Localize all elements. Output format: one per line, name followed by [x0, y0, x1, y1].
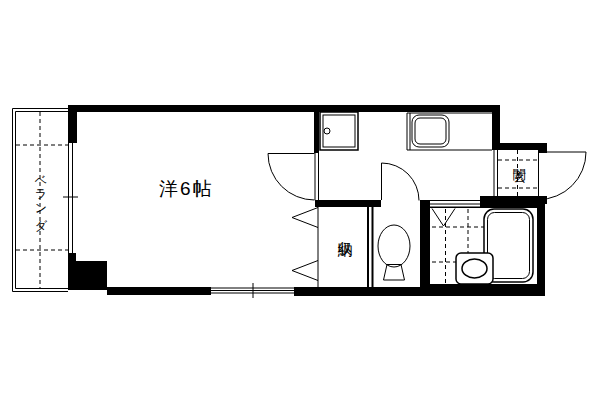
- wall-entrance-bottom: [480, 196, 547, 204]
- toilet-room: [378, 163, 419, 280]
- wall-storage-top: [315, 200, 381, 207]
- main-room-label: 洋6帖: [159, 176, 214, 202]
- door-swing-arc-icon: [539, 152, 587, 200]
- washing-machine-pan-icon: [320, 112, 358, 150]
- storage-label: 収納: [335, 229, 354, 231]
- wall-toilet-bath: [420, 200, 430, 287]
- folding-door-icon: [292, 261, 318, 281]
- folding-door-icon: [292, 208, 318, 228]
- door-swing-arc-icon: [382, 163, 420, 201]
- toilet-icon: [378, 225, 410, 267]
- wall-left-upper: [68, 105, 77, 143]
- veranda-label: ベランダ: [32, 166, 49, 224]
- faucet-drain-icon: [324, 128, 330, 134]
- washing-machine: [320, 112, 358, 150]
- wall-bath-bottom: [420, 284, 545, 296]
- bathroom-door: [430, 201, 480, 226]
- kitchen-sink-icon: [412, 115, 449, 147]
- wall-right: [537, 200, 545, 296]
- wall-bottom-left: [107, 287, 211, 295]
- room-door: [268, 153, 319, 200]
- storage-toilet-wall: [368, 207, 373, 287]
- wall-left-lower-block: [76, 261, 107, 290]
- wall-mainroom-right: [314, 105, 319, 153]
- floorplan-image: ベランダ 洋6帖 収納 玄関: [0, 0, 600, 400]
- wall-top: [68, 105, 500, 112]
- left-window: [63, 143, 78, 253]
- folding-door-icon: [432, 209, 455, 227]
- floorplan-drawing: [0, 0, 600, 400]
- bottom-window: [211, 283, 294, 298]
- entrance-dashes: [498, 150, 538, 196]
- kitchen-counter: [407, 113, 492, 150]
- door-swing-arc-icon: [268, 154, 315, 201]
- wall-left-lower-stem: [68, 253, 76, 290]
- entrance-area: [494, 150, 586, 200]
- closet-doors: [292, 207, 318, 287]
